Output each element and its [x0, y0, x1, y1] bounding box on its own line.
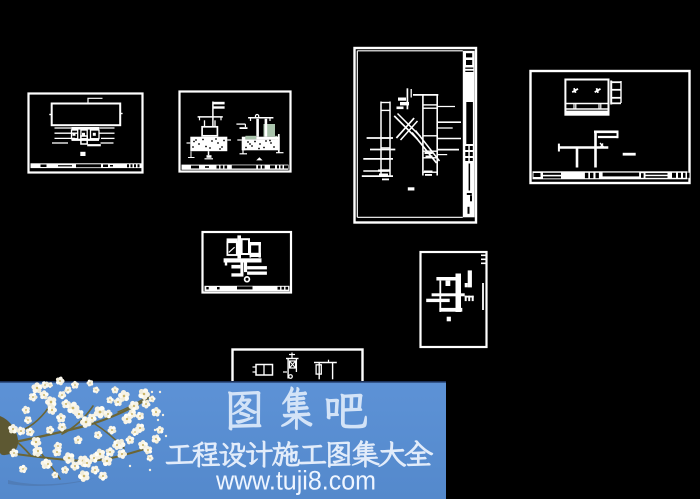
- svg-text:www.tuji8.com: www.tuji8.com: [215, 466, 376, 496]
